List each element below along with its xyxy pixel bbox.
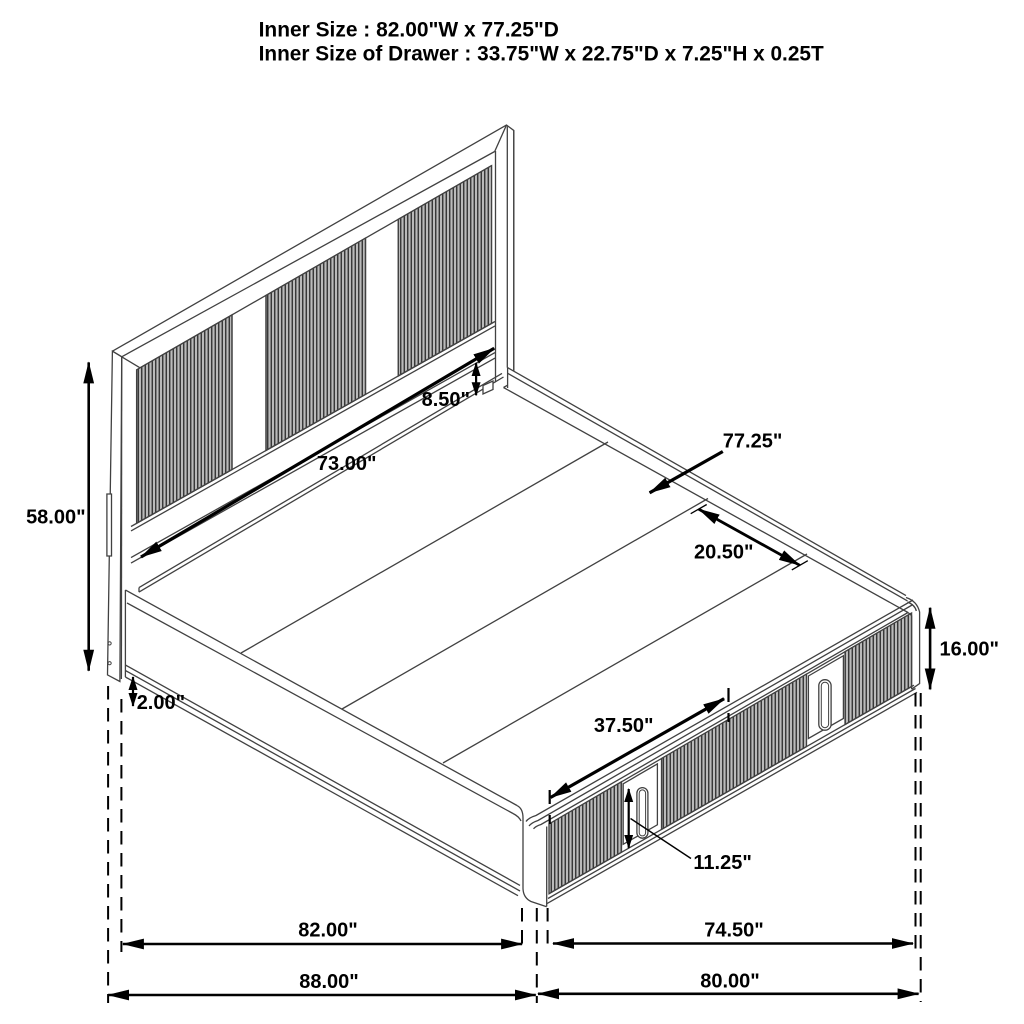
svg-text:73.00": 73.00"	[317, 453, 377, 475]
svg-text:58.00": 58.00"	[26, 507, 86, 529]
svg-text:16.00": 16.00"	[940, 639, 1000, 661]
svg-text:8.50": 8.50"	[422, 389, 470, 411]
svg-text:Inner Size of Drawer : 33.75"W: Inner Size of Drawer : 33.75"W x 22.75"D…	[259, 42, 824, 66]
svg-text:82.00": 82.00"	[298, 920, 358, 942]
svg-text:77.25": 77.25"	[723, 431, 783, 453]
svg-text:2.00": 2.00"	[137, 692, 185, 714]
svg-text:88.00": 88.00"	[299, 971, 359, 993]
svg-text:80.00": 80.00"	[700, 971, 760, 993]
svg-text:20.50": 20.50"	[694, 542, 754, 564]
svg-text:Inner Size : 82.00"W x 77.25"D: Inner Size : 82.00"W x 77.25"D	[259, 18, 559, 42]
svg-text:11.25": 11.25"	[693, 852, 751, 874]
svg-text:74.50": 74.50"	[704, 920, 764, 942]
svg-text:37.50": 37.50"	[594, 715, 654, 737]
